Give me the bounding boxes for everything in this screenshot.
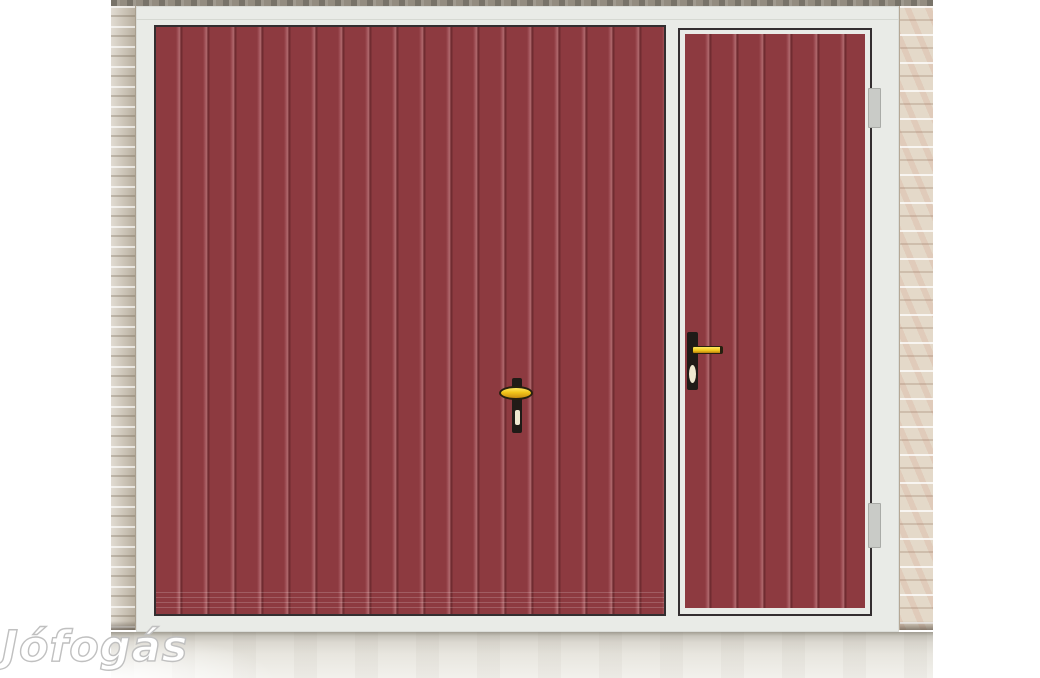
side-door-panel (685, 34, 865, 608)
brick-wall-right (899, 6, 933, 630)
door-bottom-weatherstrip (156, 592, 664, 612)
side-handle-lever (692, 346, 723, 354)
watermark: Jófogás (2, 622, 188, 672)
side-handle-keyhole-icon (689, 365, 696, 383)
side-pedestrian-door (678, 28, 872, 616)
brick-wall-left (111, 6, 136, 630)
garage-handle-keyhole-icon (515, 410, 520, 425)
garage-door-frame (136, 6, 899, 632)
main-garage-door (154, 25, 666, 616)
product-photo: Jófogás (0, 0, 1040, 678)
frame-seam (136, 19, 899, 20)
garage-handle-knob (499, 386, 533, 400)
hinge-bottom-icon (868, 503, 881, 548)
door-rib-pattern (156, 27, 664, 614)
hinge-top-icon (868, 88, 881, 128)
photo-area (111, 0, 933, 678)
concrete-floor (111, 632, 933, 678)
